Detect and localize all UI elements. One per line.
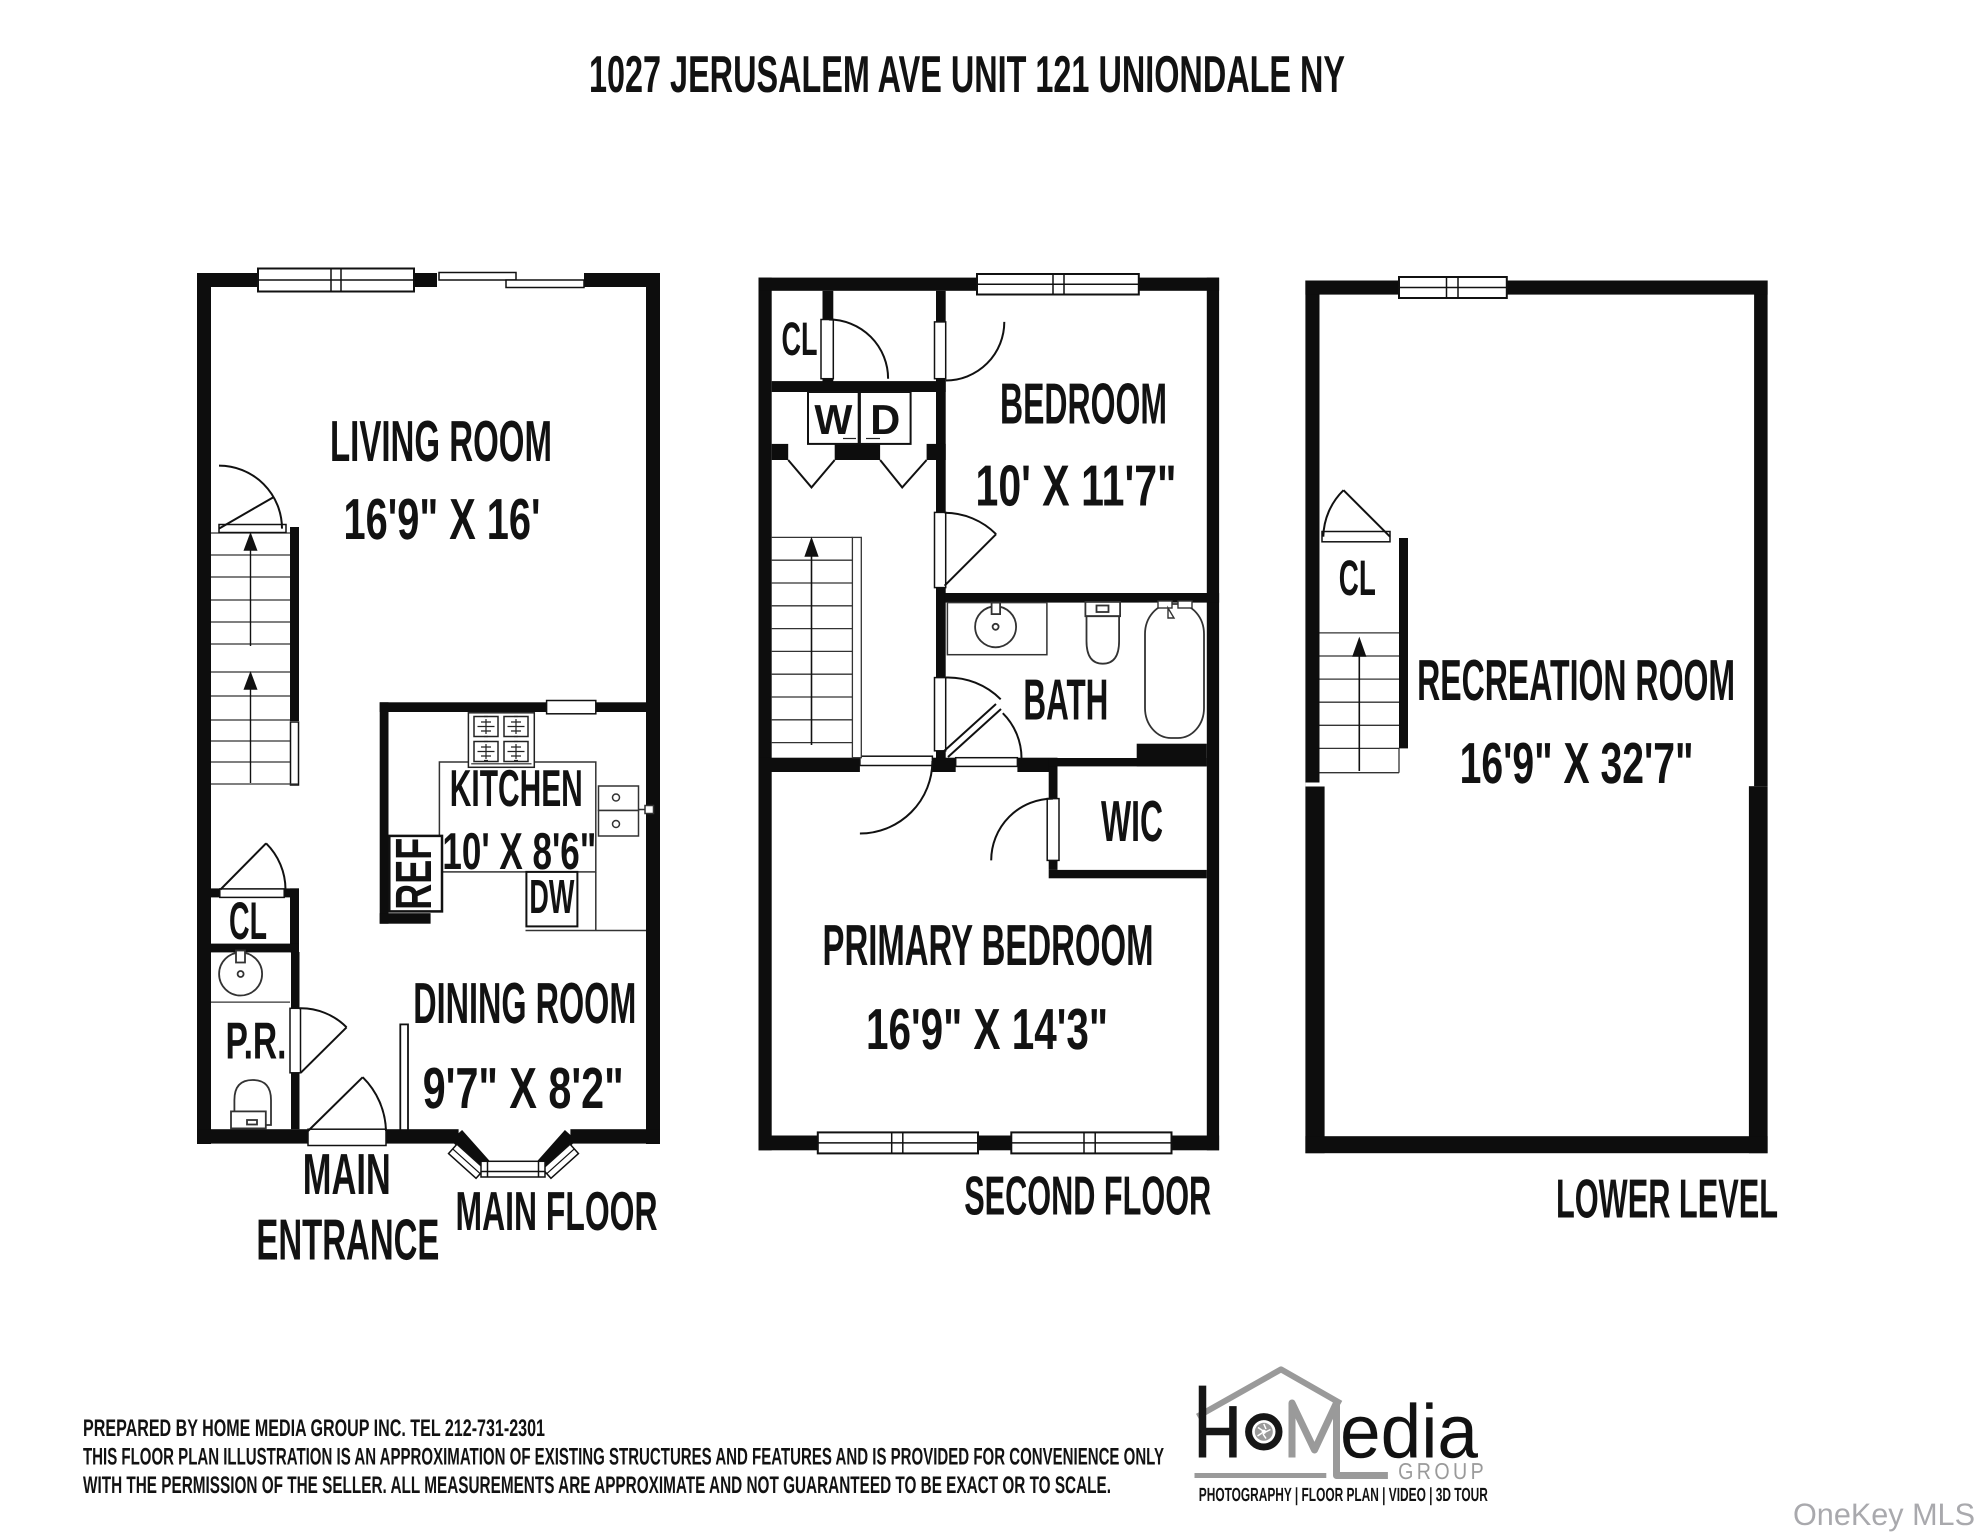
svg-text:16'9" X 14'3": 16'9" X 14'3": [866, 997, 1108, 1062]
svg-text:D: D: [870, 396, 900, 443]
svg-text:CL: CL: [1339, 550, 1376, 606]
svg-text:1027 JERUSALEM AVE UNIT 121 UN: 1027 JERUSALEM AVE UNIT 121 UNIONDALE NY: [589, 46, 1345, 104]
svg-text:PRIMARY BEDROOM: PRIMARY BEDROOM: [823, 913, 1154, 978]
svg-text:MAIN FLOOR: MAIN FLOOR: [456, 1180, 658, 1242]
svg-text:CL: CL: [229, 892, 267, 951]
svg-text:DINING ROOM: DINING ROOM: [413, 971, 636, 1036]
svg-text:PHOTOGRAPHY | FLOOR PLAN | VID: PHOTOGRAPHY | FLOOR PLAN | VIDEO | 3D TO…: [1199, 1485, 1488, 1506]
svg-text:PREPARED BY HOME MEDIA GROUP: PREPARED BY HOME MEDIA GROUP INC. TEL 21…: [83, 1415, 545, 1442]
svg-text:LOWER LEVEL: LOWER LEVEL: [1556, 1167, 1778, 1229]
svg-text:RECREATION ROOM: RECREATION ROOM: [1417, 648, 1735, 713]
svg-text:BEDROOM: BEDROOM: [1000, 372, 1167, 437]
svg-text:CL: CL: [782, 312, 818, 365]
svg-text:10' X 11'7": 10' X 11'7": [976, 453, 1177, 518]
svg-text:SECOND FLOOR: SECOND FLOOR: [964, 1164, 1211, 1226]
svg-text:WIC: WIC: [1101, 789, 1163, 854]
svg-text:OneKey MLS: OneKey MLS: [1793, 1497, 1975, 1532]
svg-text:16'9" X 16': 16'9" X 16': [344, 487, 541, 552]
svg-text:WITH THE PERMISSION OF THE SEL: WITH THE PERMISSION OF THE SELLER. ALL M…: [83, 1472, 1111, 1499]
svg-text:10' X 8'6": 10' X 8'6": [442, 823, 596, 881]
svg-text:LIVING ROOM: LIVING ROOM: [330, 409, 552, 474]
svg-text:ENTRANCE: ENTRANCE: [256, 1208, 439, 1273]
svg-text:MAIN: MAIN: [303, 1142, 391, 1207]
svg-text:REF: REF: [385, 838, 442, 910]
svg-text:P.R.: P.R.: [226, 1013, 287, 1071]
svg-text:KITCHEN: KITCHEN: [450, 760, 583, 818]
svg-text:THIS FLOOR PLAN ILLUSTRATION I: THIS FLOOR PLAN ILLUSTRATION IS AN APPRO…: [83, 1444, 1164, 1471]
svg-text:BATH: BATH: [1023, 668, 1108, 733]
svg-text:16'9" X 32'7": 16'9" X 32'7": [1460, 731, 1694, 796]
svg-text:W: W: [814, 396, 852, 443]
svg-text:9'7" X 8'2": 9'7" X 8'2": [423, 1056, 624, 1121]
svg-text:GROUP: GROUP: [1398, 1458, 1487, 1484]
